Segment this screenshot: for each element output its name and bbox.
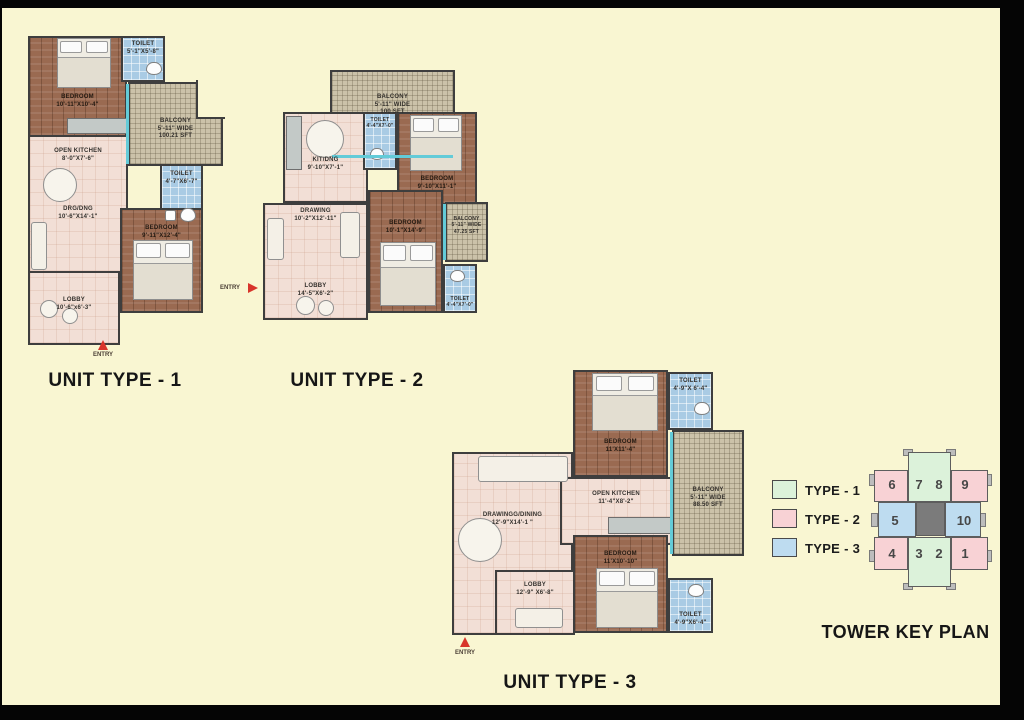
- u1-drgdng-label: DRG/DNG10'-6"X14'-1": [30, 206, 126, 221]
- u2-entry-arrow-icon: [248, 283, 258, 293]
- u3-lobby-label: LOBBY12'-9" X6'-8": [497, 582, 573, 597]
- bed-icon: [380, 242, 436, 306]
- keyplan-num-2: 2: [931, 546, 947, 561]
- bed-icon: [410, 115, 462, 171]
- u2-entry-label: ENTRY: [213, 285, 247, 291]
- sofa-icon: [478, 456, 568, 482]
- toilet-wc-icon: [688, 584, 704, 597]
- u3-toilet-1: TOILET4'-9"X 6'-4": [668, 372, 713, 430]
- sofa-icon: [515, 608, 563, 628]
- bed-icon: [57, 38, 111, 88]
- u3-bedroom2-label: BEDROOM11'X10'-10": [575, 551, 666, 566]
- u3-kitchen-label: OPEN KITCHEN11'-4"X8'-2": [562, 491, 670, 506]
- u1-entry-arrow-icon: [98, 340, 108, 350]
- keyplan-core: [916, 502, 945, 536]
- bed-icon: [596, 568, 658, 628]
- u2-balcony-right: BALCONY5'-11" WIDE47.25 SFT: [445, 202, 488, 262]
- u1-lobby-label: LOBBY10'-6"x6'-3": [30, 297, 118, 312]
- u2-lobby-label: LOBBY14'-5"X6'-2": [265, 283, 366, 298]
- type3-swatch: [772, 538, 797, 557]
- keyplan-num-5: 5: [887, 513, 903, 528]
- bed-icon: [592, 373, 658, 431]
- keyplan-num-8: 8: [931, 477, 947, 492]
- u2-balcony-right-window: [443, 204, 446, 260]
- legend-row-type3: TYPE - 3: [772, 538, 882, 558]
- toilet-wc-icon: [146, 62, 162, 75]
- keyplan-balcony-tab: [871, 513, 878, 527]
- type2-label: TYPE - 2: [805, 512, 860, 527]
- u3-balcony-label: BALCONY5'-11" WIDE88.50 SFT: [674, 487, 742, 510]
- u2-kitdng-label: KIT/DNG9'-10"X7'-1": [285, 157, 366, 172]
- u3-lobby: LOBBY12'-9" X6'-8": [495, 570, 575, 635]
- u1-balcony-label: BALCONY5'-11" WIDE100.21 SFT: [130, 118, 221, 141]
- u1-toilet2-label: TOILET4'-7"X6'-7": [162, 171, 201, 186]
- u1-bedroom1-label: BEDROOM10'-11"X10'-4": [30, 94, 125, 109]
- toilet-basin-icon: [165, 210, 176, 221]
- bed-icon: [133, 240, 193, 300]
- toilet-wc-icon: [694, 402, 710, 415]
- u2-toilet2-label: TOILET4'-4"X7'-0": [445, 296, 475, 309]
- u2-bedroom2-label: BEDROOM10'-1"X14'-9": [370, 220, 441, 235]
- u3-entry-label: ENTRY: [445, 650, 485, 656]
- chair-icon: [318, 300, 334, 316]
- keyplan-num-10: 10: [953, 513, 975, 528]
- sofa-icon: [267, 218, 284, 260]
- chair-icon: [296, 296, 315, 315]
- u2-balcony-top-label: BALCONY5'-11" WIDE100 SFT: [332, 94, 453, 117]
- u3-balcony-window: [670, 432, 673, 554]
- legend-row-type2: TYPE - 2: [772, 509, 882, 529]
- kitchen-counter: [608, 517, 672, 534]
- keyplan-num-1: 1: [957, 546, 973, 561]
- u2-toilet-1: TOILET4'-4"X7'-0": [363, 112, 397, 170]
- keyplan-num-7: 7: [911, 477, 927, 492]
- u3-bedroom1-label: BEDROOM11'X11'-4": [575, 439, 666, 454]
- toilet-wc-icon: [180, 208, 196, 222]
- u2-toilet1-label: TOILET4'-4"X7'-0": [365, 117, 395, 130]
- u3-drawing-label: DRAWINGG/DINING12'-9"X14'-1 ": [454, 512, 571, 527]
- type2-swatch: [772, 509, 797, 528]
- u2-drawing-lobby: DRAWING10'-2"X12'-11" LOBBY14'-5"X6'-2": [263, 203, 368, 320]
- keyplan-num-4: 4: [884, 546, 900, 561]
- dining-table-icon: [306, 120, 344, 158]
- keyplan-unit-3-2: [908, 537, 951, 587]
- legend-row-type1: TYPE - 1: [772, 480, 882, 500]
- toilet-wc-icon: [370, 148, 384, 160]
- u3-toilet2-label: TOILET4'-9"X6'-4": [670, 612, 711, 627]
- u2-bedroom1-label: BEDROOM9'-10"X11'-1": [399, 176, 475, 191]
- keyplan-num-6: 6: [884, 477, 900, 492]
- u1-bedroom2-label: BEDROOM9'-11"X12'-4": [122, 225, 201, 240]
- kitchen-counter: [67, 118, 127, 134]
- u1-entry-label: ENTRY: [83, 352, 123, 358]
- u2-balcony-right-label: BALCONY5'-11" WIDE47.25 SFT: [447, 216, 486, 235]
- u2-drawing-label: DRAWING10'-2"X12'-11": [265, 208, 366, 223]
- toilet-wc-icon: [450, 270, 465, 282]
- u3-balcony: BALCONY5'-11" WIDE88.50 SFT: [672, 430, 744, 556]
- sofa-icon: [31, 222, 47, 270]
- keyplan-num-9: 9: [957, 477, 973, 492]
- floor-plan-brochure-page: OPEN KITCHEN8'-0"X7'-6" DRG/DNG10'-6"X14…: [0, 0, 1024, 720]
- dining-table-icon: [43, 168, 77, 202]
- keyplan-num-3: 3: [911, 546, 927, 561]
- u3-entry-arrow-icon: [460, 637, 470, 647]
- u1-title: UNIT TYPE - 1: [15, 370, 215, 392]
- u1-balcony-notch: [196, 80, 225, 119]
- type1-label: TYPE - 1: [805, 483, 860, 498]
- type3-label: TYPE - 3: [805, 541, 860, 556]
- tower-key-plan-title: TOWER KEY PLAN: [808, 622, 1003, 643]
- u1-toilet1-label: TOILET5'-1"X5'-8": [123, 41, 163, 56]
- u1-balcony-window: [126, 84, 129, 164]
- u3-title: UNIT TYPE - 3: [470, 672, 670, 694]
- type1-swatch: [772, 480, 797, 499]
- u1-kitchen-label: OPEN KITCHEN8'-0"X7'-6": [30, 148, 126, 163]
- u1-toilet-1: TOILET5'-1"X5'-8": [121, 36, 165, 82]
- u3-toilet1-label: TOILET4'-9"X 6'-4": [670, 378, 711, 393]
- u1-lobby: LOBBY10'-6"x6'-3": [28, 271, 120, 345]
- u2-title: UNIT TYPE - 2: [257, 370, 457, 392]
